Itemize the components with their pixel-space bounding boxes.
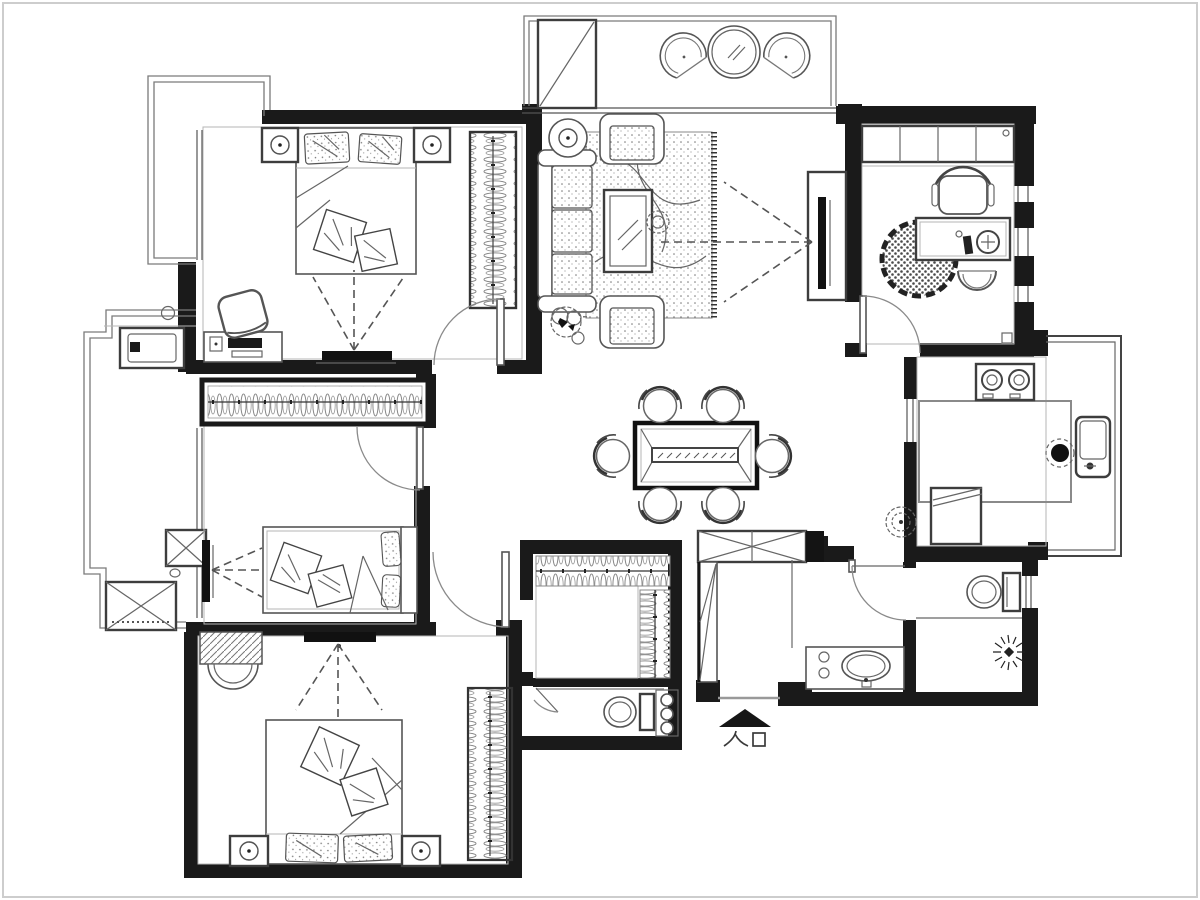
floor-drain-icon — [1002, 333, 1012, 343]
bed-icon — [263, 527, 417, 613]
linen-cabinet-icon — [698, 562, 717, 682]
dresser-icon — [200, 632, 262, 689]
washing-machine-icon — [120, 328, 184, 368]
floor-plan-drawing: 入口 — [0, 0, 1200, 900]
desk-icon — [916, 218, 1010, 260]
toilet-icon — [967, 573, 1020, 611]
kitchen — [886, 357, 1110, 546]
entry-hall: 入口 — [698, 531, 824, 750]
bedroom-master — [203, 127, 522, 365]
door-icon — [534, 688, 558, 712]
dining-table-icon — [635, 423, 757, 488]
floor-drain-icon — [162, 307, 175, 320]
tv-icon — [818, 197, 826, 289]
tv-niche — [808, 172, 846, 300]
chair-icon — [639, 488, 681, 523]
sofa-icon — [538, 150, 596, 312]
coffee-table-icon — [604, 190, 652, 272]
armchair-icon — [600, 296, 664, 348]
tv-icon — [202, 540, 213, 602]
door-icon — [433, 552, 509, 627]
cabinet-icon — [931, 488, 982, 544]
vanity-icon — [806, 647, 904, 689]
shower-icon — [993, 635, 1025, 670]
laundry-sink-icon — [106, 582, 176, 630]
nightstand-icon — [414, 128, 450, 162]
armchair-icon — [958, 271, 996, 290]
entry-arrow-icon — [719, 709, 771, 727]
study — [860, 124, 1014, 353]
closet-hangers-top — [536, 556, 670, 586]
bookshelf-icon — [862, 126, 1014, 166]
toilet-icon — [604, 694, 654, 730]
chair-icon — [702, 488, 744, 523]
bed-icon — [296, 128, 416, 274]
balcony-chair-icon — [651, 24, 710, 81]
duct-shaft-icon — [166, 530, 206, 577]
chair-icon — [639, 387, 681, 422]
balcony-window-panel — [538, 20, 596, 108]
walk-in-closet — [536, 556, 670, 678]
balcony-top-left-outline — [148, 76, 270, 264]
tv-sightlines — [313, 270, 403, 350]
armchair-icon — [600, 114, 664, 164]
nightstand-icon — [230, 836, 268, 866]
door-icon — [849, 560, 906, 620]
nightstand-icon — [402, 836, 440, 866]
balcony-chair-icon — [760, 24, 819, 81]
floor-plan-page: 入口 — [0, 0, 1200, 900]
tv-sightlines — [212, 548, 264, 597]
bathroom-small — [534, 688, 678, 736]
sink-icon — [1076, 417, 1110, 477]
side-table-fan-icon — [549, 119, 587, 157]
chair-icon — [756, 435, 791, 477]
door-icon — [357, 427, 423, 490]
shoe-cabinet-icon — [698, 531, 824, 562]
chair-icon — [702, 387, 744, 422]
tv-sightlines — [296, 644, 382, 722]
wardrobe-icon — [470, 132, 516, 308]
bathroom-main — [916, 573, 1025, 670]
wardrobe-icon — [202, 380, 428, 424]
chair-icon — [594, 435, 629, 477]
entry-marker: 入口 — [719, 709, 771, 750]
office-chair-icon — [932, 167, 994, 214]
balcony-table-icon — [708, 26, 760, 78]
wardrobe-icon — [468, 688, 512, 860]
bedroom-middle — [202, 380, 428, 624]
closet-hangers-right — [640, 590, 670, 678]
nightstand-icon — [262, 128, 298, 162]
dining-room — [594, 387, 791, 523]
pot-icon — [1046, 439, 1074, 467]
entry-label-text: 入口 — [731, 734, 759, 750]
wash-area — [792, 560, 906, 689]
bed-icon — [266, 720, 402, 864]
stove-icon — [976, 364, 1034, 400]
